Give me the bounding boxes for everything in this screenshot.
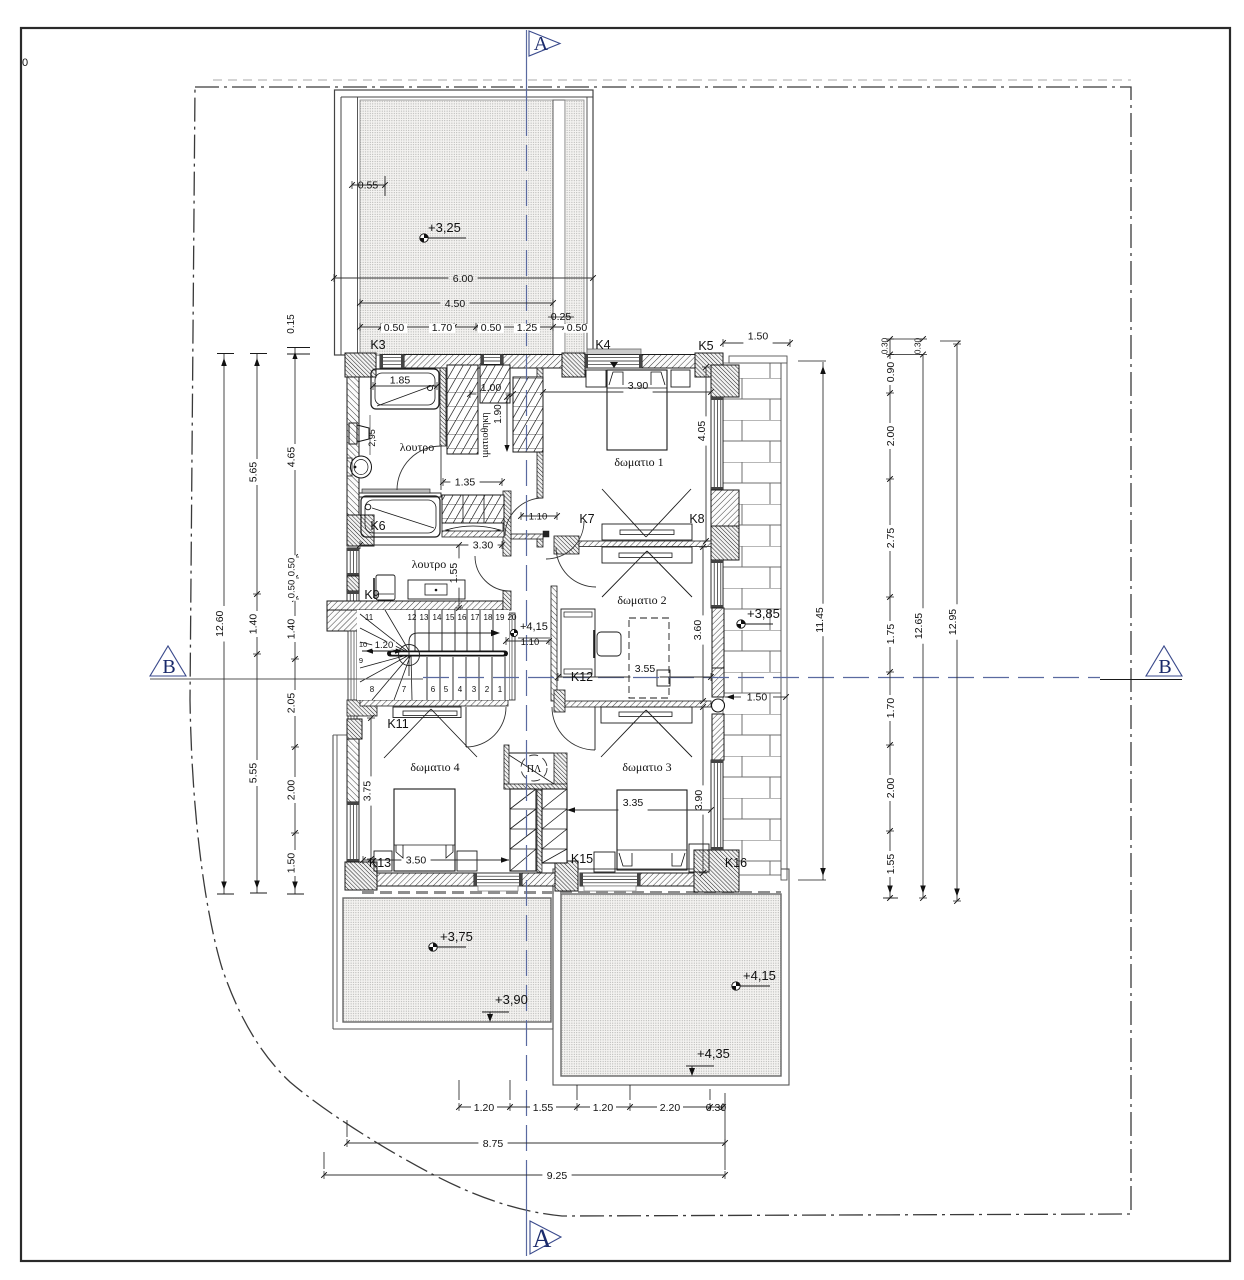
- svg-text:2.20: 2.20: [660, 1102, 681, 1114]
- svg-text:4.50: 4.50: [445, 298, 466, 310]
- svg-text:δωματιο 1: δωματιο 1: [614, 455, 663, 469]
- svg-text:+3,75: +3,75: [440, 929, 473, 944]
- svg-text:3.35: 3.35: [623, 797, 644, 809]
- svg-text:17: 17: [471, 613, 480, 622]
- svg-text:11: 11: [365, 613, 374, 622]
- svg-text:5: 5: [444, 685, 449, 694]
- svg-text:2.00: 2.00: [285, 780, 297, 801]
- svg-text:δωματιο 4: δωματιο 4: [410, 760, 459, 774]
- svg-text:8: 8: [370, 685, 375, 694]
- svg-text:3.55: 3.55: [635, 663, 656, 675]
- svg-text:19: 19: [496, 613, 505, 622]
- svg-text:9: 9: [359, 656, 363, 665]
- svg-text:3.90: 3.90: [693, 790, 705, 811]
- svg-text:1.85: 1.85: [390, 375, 411, 387]
- svg-text:12: 12: [408, 613, 417, 622]
- svg-text:K8: K8: [689, 512, 704, 526]
- svg-text:0.30: 0.30: [913, 337, 923, 354]
- svg-text:K4: K4: [595, 338, 610, 352]
- svg-text:18: 18: [484, 613, 493, 622]
- svg-text:K15: K15: [571, 852, 593, 866]
- svg-text:12.95: 12.95: [947, 609, 959, 635]
- svg-text:9.25: 9.25: [547, 1170, 568, 1182]
- svg-text:2.75: 2.75: [885, 528, 897, 549]
- svg-text:1.90: 1.90: [493, 404, 504, 424]
- svg-text:4: 4: [458, 685, 463, 694]
- svg-text:7: 7: [402, 685, 407, 694]
- svg-text:1.20: 1.20: [375, 640, 394, 651]
- svg-text:λουτρο: λουτρο: [412, 557, 447, 571]
- svg-text:0.55: 0.55: [358, 180, 379, 192]
- svg-text:A: A: [533, 1224, 552, 1253]
- svg-text:λουτρο: λουτρο: [400, 440, 435, 454]
- svg-text:δωματιο 3: δωματιο 3: [622, 760, 671, 774]
- svg-text:1.20: 1.20: [593, 1102, 614, 1114]
- svg-text:3: 3: [472, 685, 477, 694]
- svg-text:12.65: 12.65: [913, 613, 925, 639]
- svg-text:2,95: 2,95: [367, 429, 377, 447]
- svg-text:B: B: [162, 656, 175, 678]
- svg-text:+3,85: +3,85: [747, 606, 780, 621]
- svg-text:1.55: 1.55: [885, 854, 897, 875]
- svg-text:1.70: 1.70: [885, 698, 897, 719]
- svg-text:3.90: 3.90: [628, 380, 649, 392]
- svg-text:1.40: 1.40: [247, 614, 259, 635]
- svg-text:1.25: 1.25: [517, 322, 538, 334]
- svg-text:14: 14: [433, 613, 442, 622]
- svg-text:1.35: 1.35: [455, 477, 476, 489]
- svg-text:A: A: [534, 33, 549, 55]
- svg-text:K6: K6: [370, 519, 385, 533]
- svg-text:0.30: 0.30: [880, 337, 890, 354]
- svg-text:1.55: 1.55: [533, 1102, 554, 1114]
- svg-text:K11: K11: [387, 717, 408, 731]
- svg-text:+4,35: +4,35: [697, 1046, 730, 1061]
- svg-text:K7: K7: [579, 512, 594, 526]
- svg-text:1.10: 1.10: [529, 512, 548, 523]
- svg-text:+3,25: +3,25: [428, 220, 461, 235]
- svg-text:1.50: 1.50: [748, 331, 769, 343]
- svg-text:6: 6: [431, 685, 436, 694]
- svg-text:ιματιοθηκη: ιματιοθηκη: [480, 412, 491, 457]
- svg-text:K9: K9: [364, 588, 379, 602]
- svg-text:6.00: 6.00: [453, 273, 474, 285]
- svg-text:1.00: 1.00: [481, 382, 502, 394]
- svg-text:0.50: 0.50: [286, 580, 297, 599]
- svg-text:δωματιο 2: δωματιο 2: [617, 593, 666, 607]
- svg-text:12.60: 12.60: [214, 610, 226, 636]
- svg-text:+4,15: +4,15: [743, 968, 776, 983]
- svg-text:K12: K12: [571, 670, 593, 684]
- svg-text:K13: K13: [369, 856, 391, 870]
- svg-text:1.50: 1.50: [285, 853, 297, 874]
- svg-text:0.50: 0.50: [481, 322, 502, 334]
- svg-text:5.55: 5.55: [247, 763, 259, 784]
- svg-text:2.05: 2.05: [285, 693, 297, 714]
- svg-text:15: 15: [446, 613, 455, 622]
- svg-text:1.20: 1.20: [474, 1102, 495, 1114]
- svg-text:1.75: 1.75: [885, 624, 897, 645]
- svg-text:1.50: 1.50: [747, 692, 768, 704]
- svg-text:13: 13: [420, 613, 429, 622]
- svg-text:K3: K3: [370, 338, 385, 352]
- svg-text:3.30: 3.30: [473, 540, 494, 552]
- svg-text:3.60: 3.60: [692, 620, 704, 641]
- svg-text:2.00: 2.00: [885, 426, 897, 447]
- svg-text:16: 16: [458, 613, 467, 622]
- svg-text:K5: K5: [698, 339, 713, 353]
- svg-text:1.55: 1.55: [448, 563, 460, 584]
- svg-text:2.00: 2.00: [885, 778, 897, 799]
- svg-text:4.05: 4.05: [696, 421, 708, 442]
- svg-text:+3,90: +3,90: [495, 992, 528, 1007]
- svg-text:1.10: 1.10: [521, 637, 540, 648]
- svg-text:20: 20: [508, 613, 517, 622]
- svg-text:K16: K16: [725, 856, 747, 870]
- svg-text:1: 1: [498, 685, 503, 694]
- svg-text:1.40: 1.40: [285, 619, 297, 640]
- svg-text:2: 2: [485, 685, 490, 694]
- svg-text:0.50: 0.50: [567, 322, 588, 334]
- svg-text:+4,15: +4,15: [520, 621, 548, 633]
- svg-text:0.50: 0.50: [286, 558, 297, 577]
- svg-text:1.70: 1.70: [432, 322, 453, 334]
- svg-text:3.75: 3.75: [361, 781, 373, 802]
- svg-text:0.15: 0.15: [286, 314, 297, 334]
- svg-text:10: 10: [359, 640, 367, 649]
- svg-text:11.45: 11.45: [814, 607, 826, 633]
- svg-text:B: B: [1158, 656, 1171, 678]
- svg-text:4.65: 4.65: [285, 447, 297, 468]
- svg-text:0.90: 0.90: [885, 362, 897, 383]
- svg-text:8.75: 8.75: [483, 1138, 504, 1150]
- svg-text:5.65: 5.65: [247, 462, 259, 483]
- svg-text:0: 0: [22, 57, 28, 69]
- svg-text:ΠΛ: ΠΛ: [527, 764, 542, 775]
- svg-text:0.30: 0.30: [706, 1102, 727, 1114]
- svg-text:3.50: 3.50: [406, 855, 427, 867]
- svg-text:0.50: 0.50: [384, 322, 405, 334]
